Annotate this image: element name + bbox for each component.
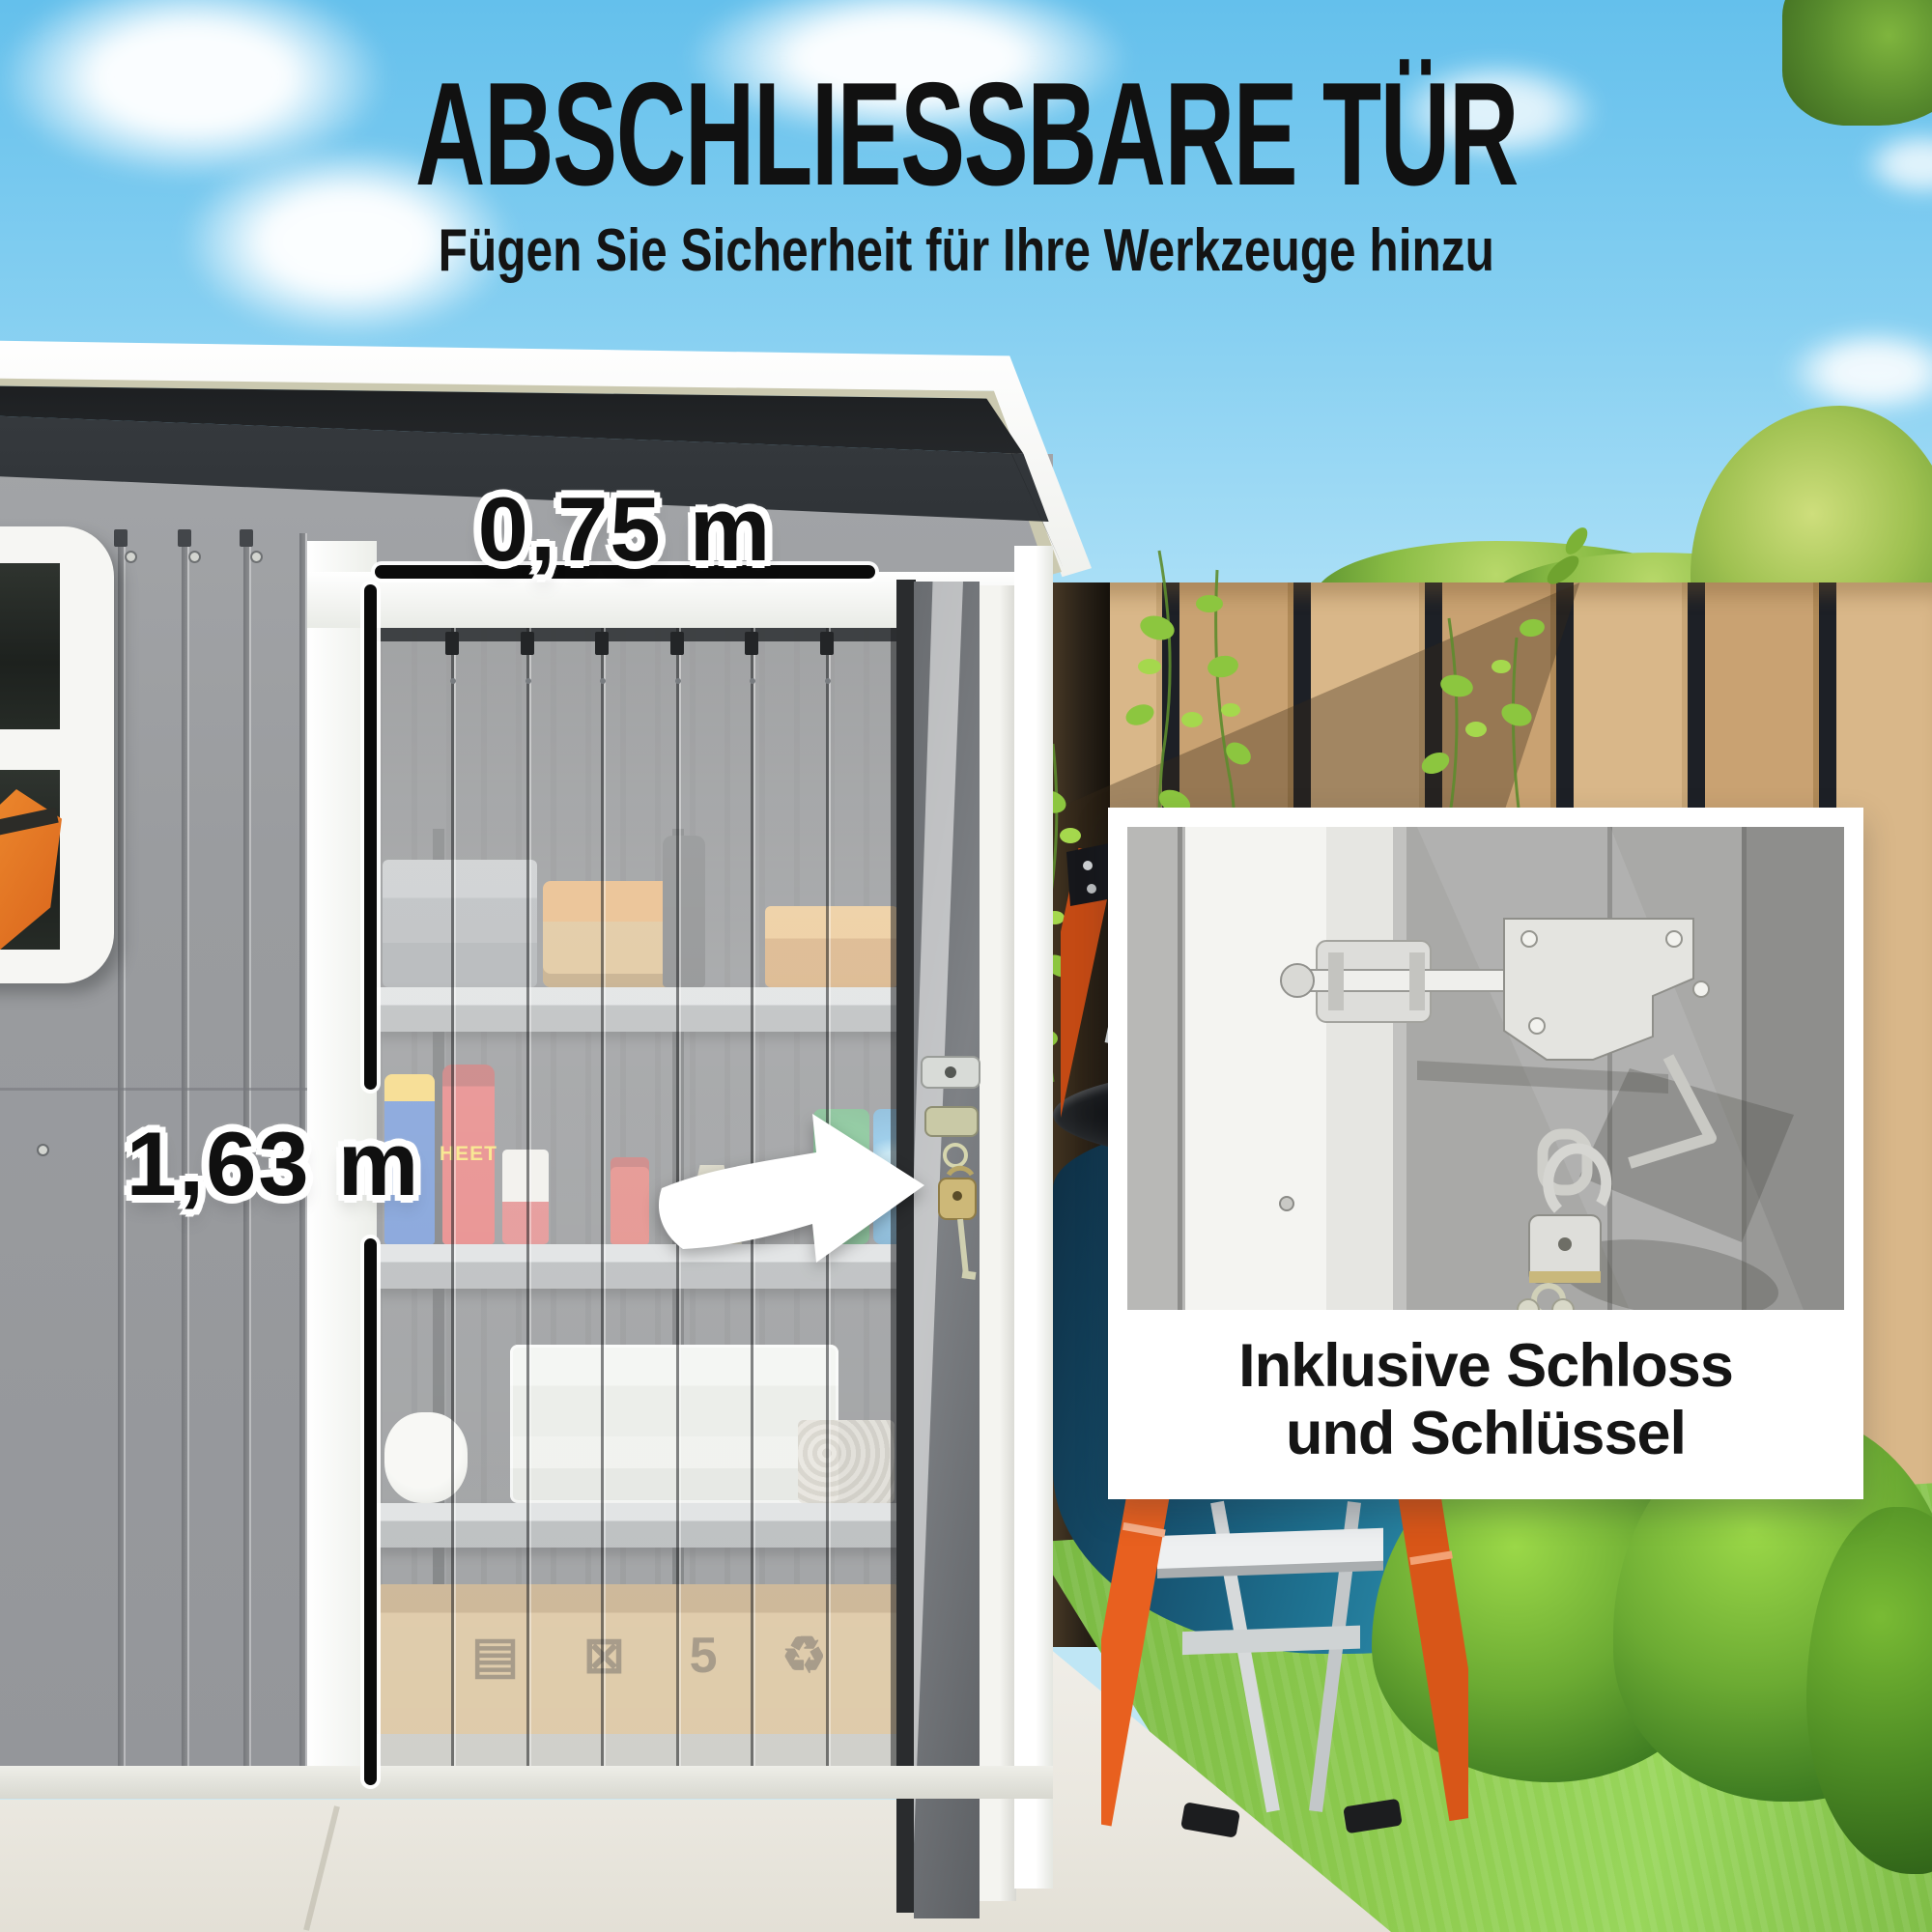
panel-clip: [745, 632, 758, 655]
shed-product-marketing-image: ABSCHLIESSBARE TÜR Fügen Sie Sicherheit …: [0, 0, 1932, 1932]
panel-screw: [675, 678, 681, 684]
inset-caption-line1: Inklusive Schloss: [1238, 1335, 1733, 1397]
shed-window: [0, 526, 114, 983]
door-panel-line: [526, 628, 529, 1785]
panel-notch: [240, 529, 253, 547]
panel-clip: [670, 632, 684, 655]
page-subtitle: Fügen Sie Sicherheit für Ihre Werkzeuge …: [438, 216, 1493, 285]
panel-clip: [521, 632, 534, 655]
wall-seam: [0, 1088, 309, 1091]
panel-screw: [526, 678, 531, 684]
window-pane-top: [0, 563, 60, 729]
screw: [190, 553, 199, 561]
height-measure-line-bottom: [364, 1238, 377, 1785]
screw: [39, 1146, 47, 1154]
lock-detail-inset: Inklusive Schloss und Schlüssel: [1108, 808, 1863, 1499]
shed-corner-trim: [1014, 546, 1053, 1889]
panel-notch: [178, 529, 191, 547]
height-measure-line-top: [364, 584, 377, 1090]
screw: [252, 553, 261, 561]
orange-step-ladder: [1101, 1488, 1468, 1855]
shed-base-rail: [0, 1766, 1053, 1799]
panel-screw: [750, 678, 755, 684]
panel-screw: [600, 678, 606, 684]
door-panel-line: [451, 628, 454, 1785]
screw: [127, 553, 135, 561]
door-height-label: 1,63 m: [127, 1112, 421, 1216]
panel-clip: [445, 632, 459, 655]
door-panel-line: [601, 628, 604, 1785]
inset-caption-line2: und Schlüssel: [1286, 1403, 1686, 1464]
panel-screw: [825, 678, 831, 684]
panel-notch: [114, 529, 128, 547]
inset-caption: Inklusive Schloss und Schlüssel: [1108, 1310, 1863, 1490]
panel-screw: [450, 678, 456, 684]
panel-clip: [820, 632, 834, 655]
page-title: ABSCHLIESSBARE TÜR: [414, 50, 1517, 219]
wall-panel-groove: [118, 533, 124, 1768]
corner-foliage: [1782, 0, 1932, 126]
door-width-label: 0,75 m: [478, 477, 773, 582]
lock-closeup-photo: [1127, 827, 1844, 1310]
door-open-direction-arrow-icon: [633, 1077, 952, 1299]
panel-clip: [595, 632, 609, 655]
